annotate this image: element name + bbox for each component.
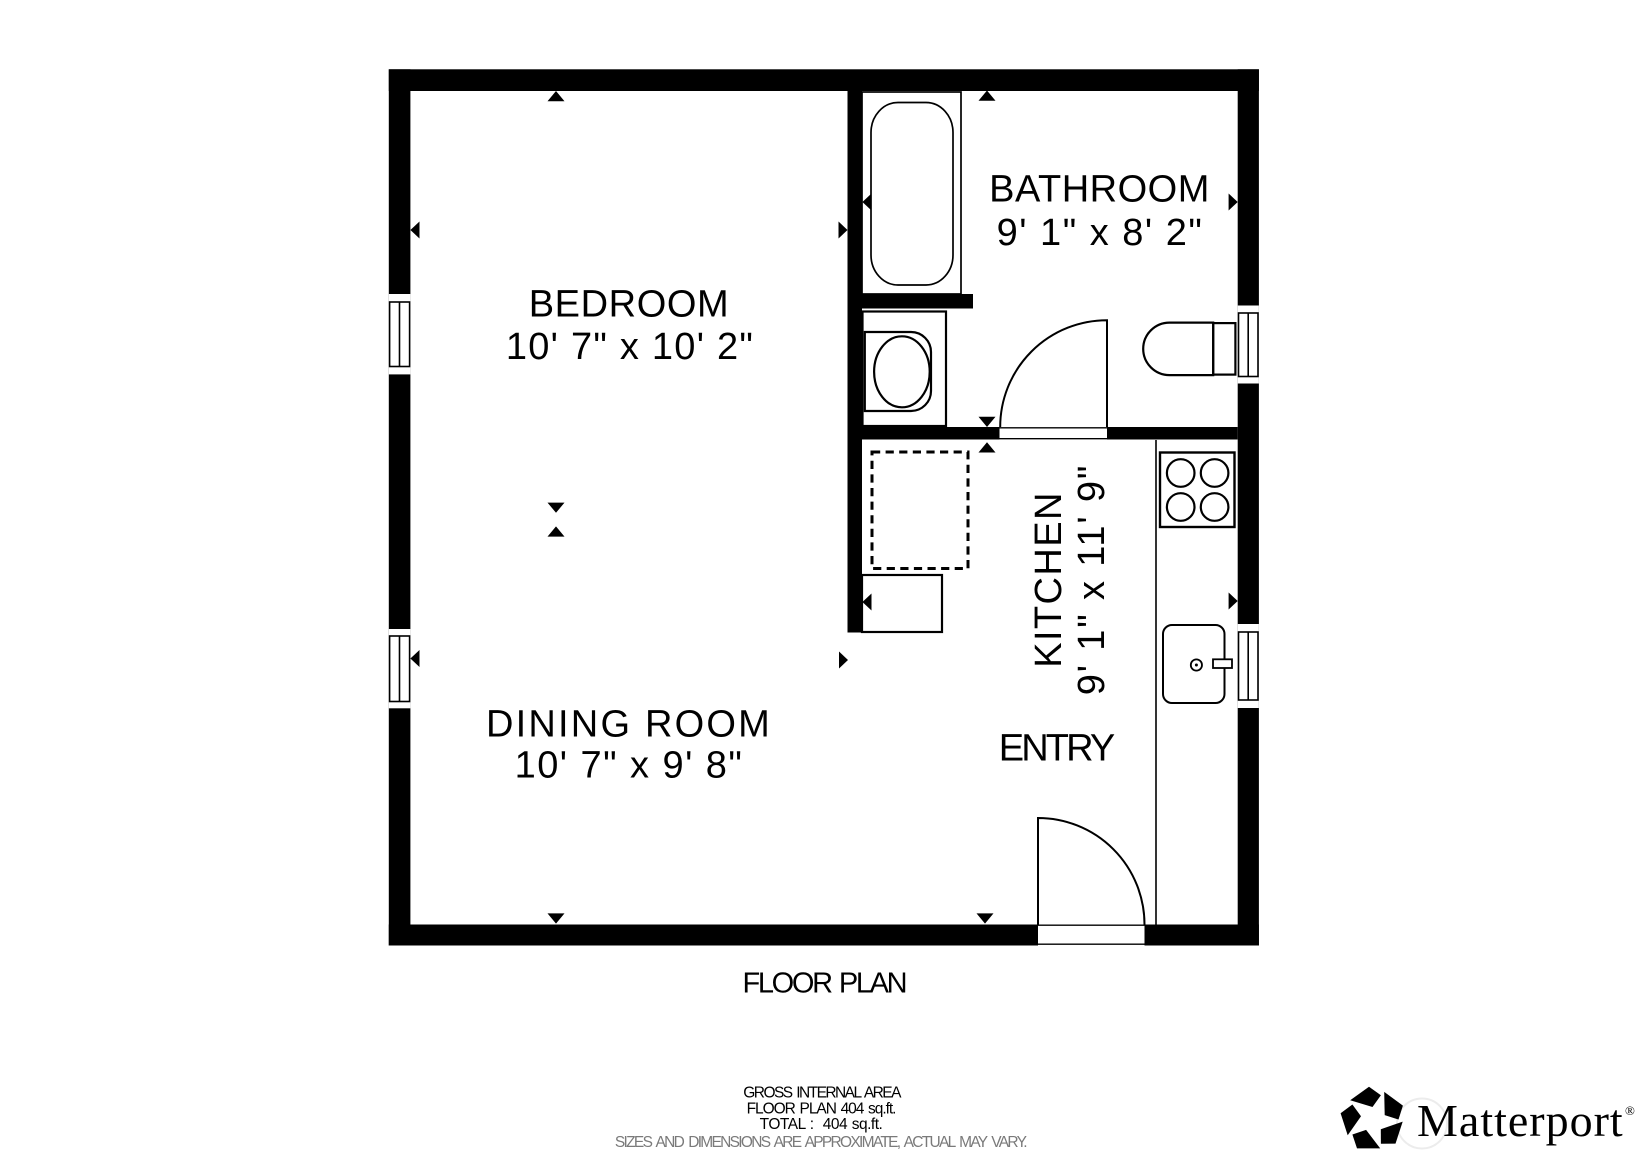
svg-text:®: ®	[1625, 1103, 1635, 1118]
svg-text:DINING ROOM: DINING ROOM	[486, 704, 772, 746]
svg-text:BEDROOM: BEDROOM	[529, 283, 730, 325]
svg-text:10' 7" x 10' 2": 10' 7" x 10' 2"	[506, 326, 754, 368]
svg-text:FLOOR PLAN: FLOOR PLAN	[743, 968, 906, 1000]
svg-text:GROSS INTERNAL AREA: GROSS INTERNAL AREA	[743, 1084, 902, 1101]
svg-text:Matterport: Matterport	[1417, 1095, 1624, 1146]
svg-text:9' 1" x 8' 2": 9' 1" x 8' 2"	[997, 212, 1204, 254]
svg-text:9' 1" x 11' 9": 9' 1" x 11' 9"	[1071, 464, 1113, 695]
svg-text:10' 7" x 9' 8": 10' 7" x 9' 8"	[515, 745, 744, 787]
svg-text:ENTRY: ENTRY	[999, 728, 1115, 770]
svg-text:BATHROOM: BATHROOM	[989, 169, 1210, 211]
svg-text:SIZES AND DIMENSIONS ARE APPRO: SIZES AND DIMENSIONS ARE APPROXIMATE, AC…	[615, 1134, 1027, 1151]
svg-text:TOTAL : 404 sq.ft.: TOTAL : 404 sq.ft.	[760, 1116, 883, 1133]
svg-text:FLOOR PLAN 404 sq.ft.: FLOOR PLAN 404 sq.ft.	[747, 1100, 896, 1117]
svg-text:KITCHEN: KITCHEN	[1028, 491, 1070, 668]
